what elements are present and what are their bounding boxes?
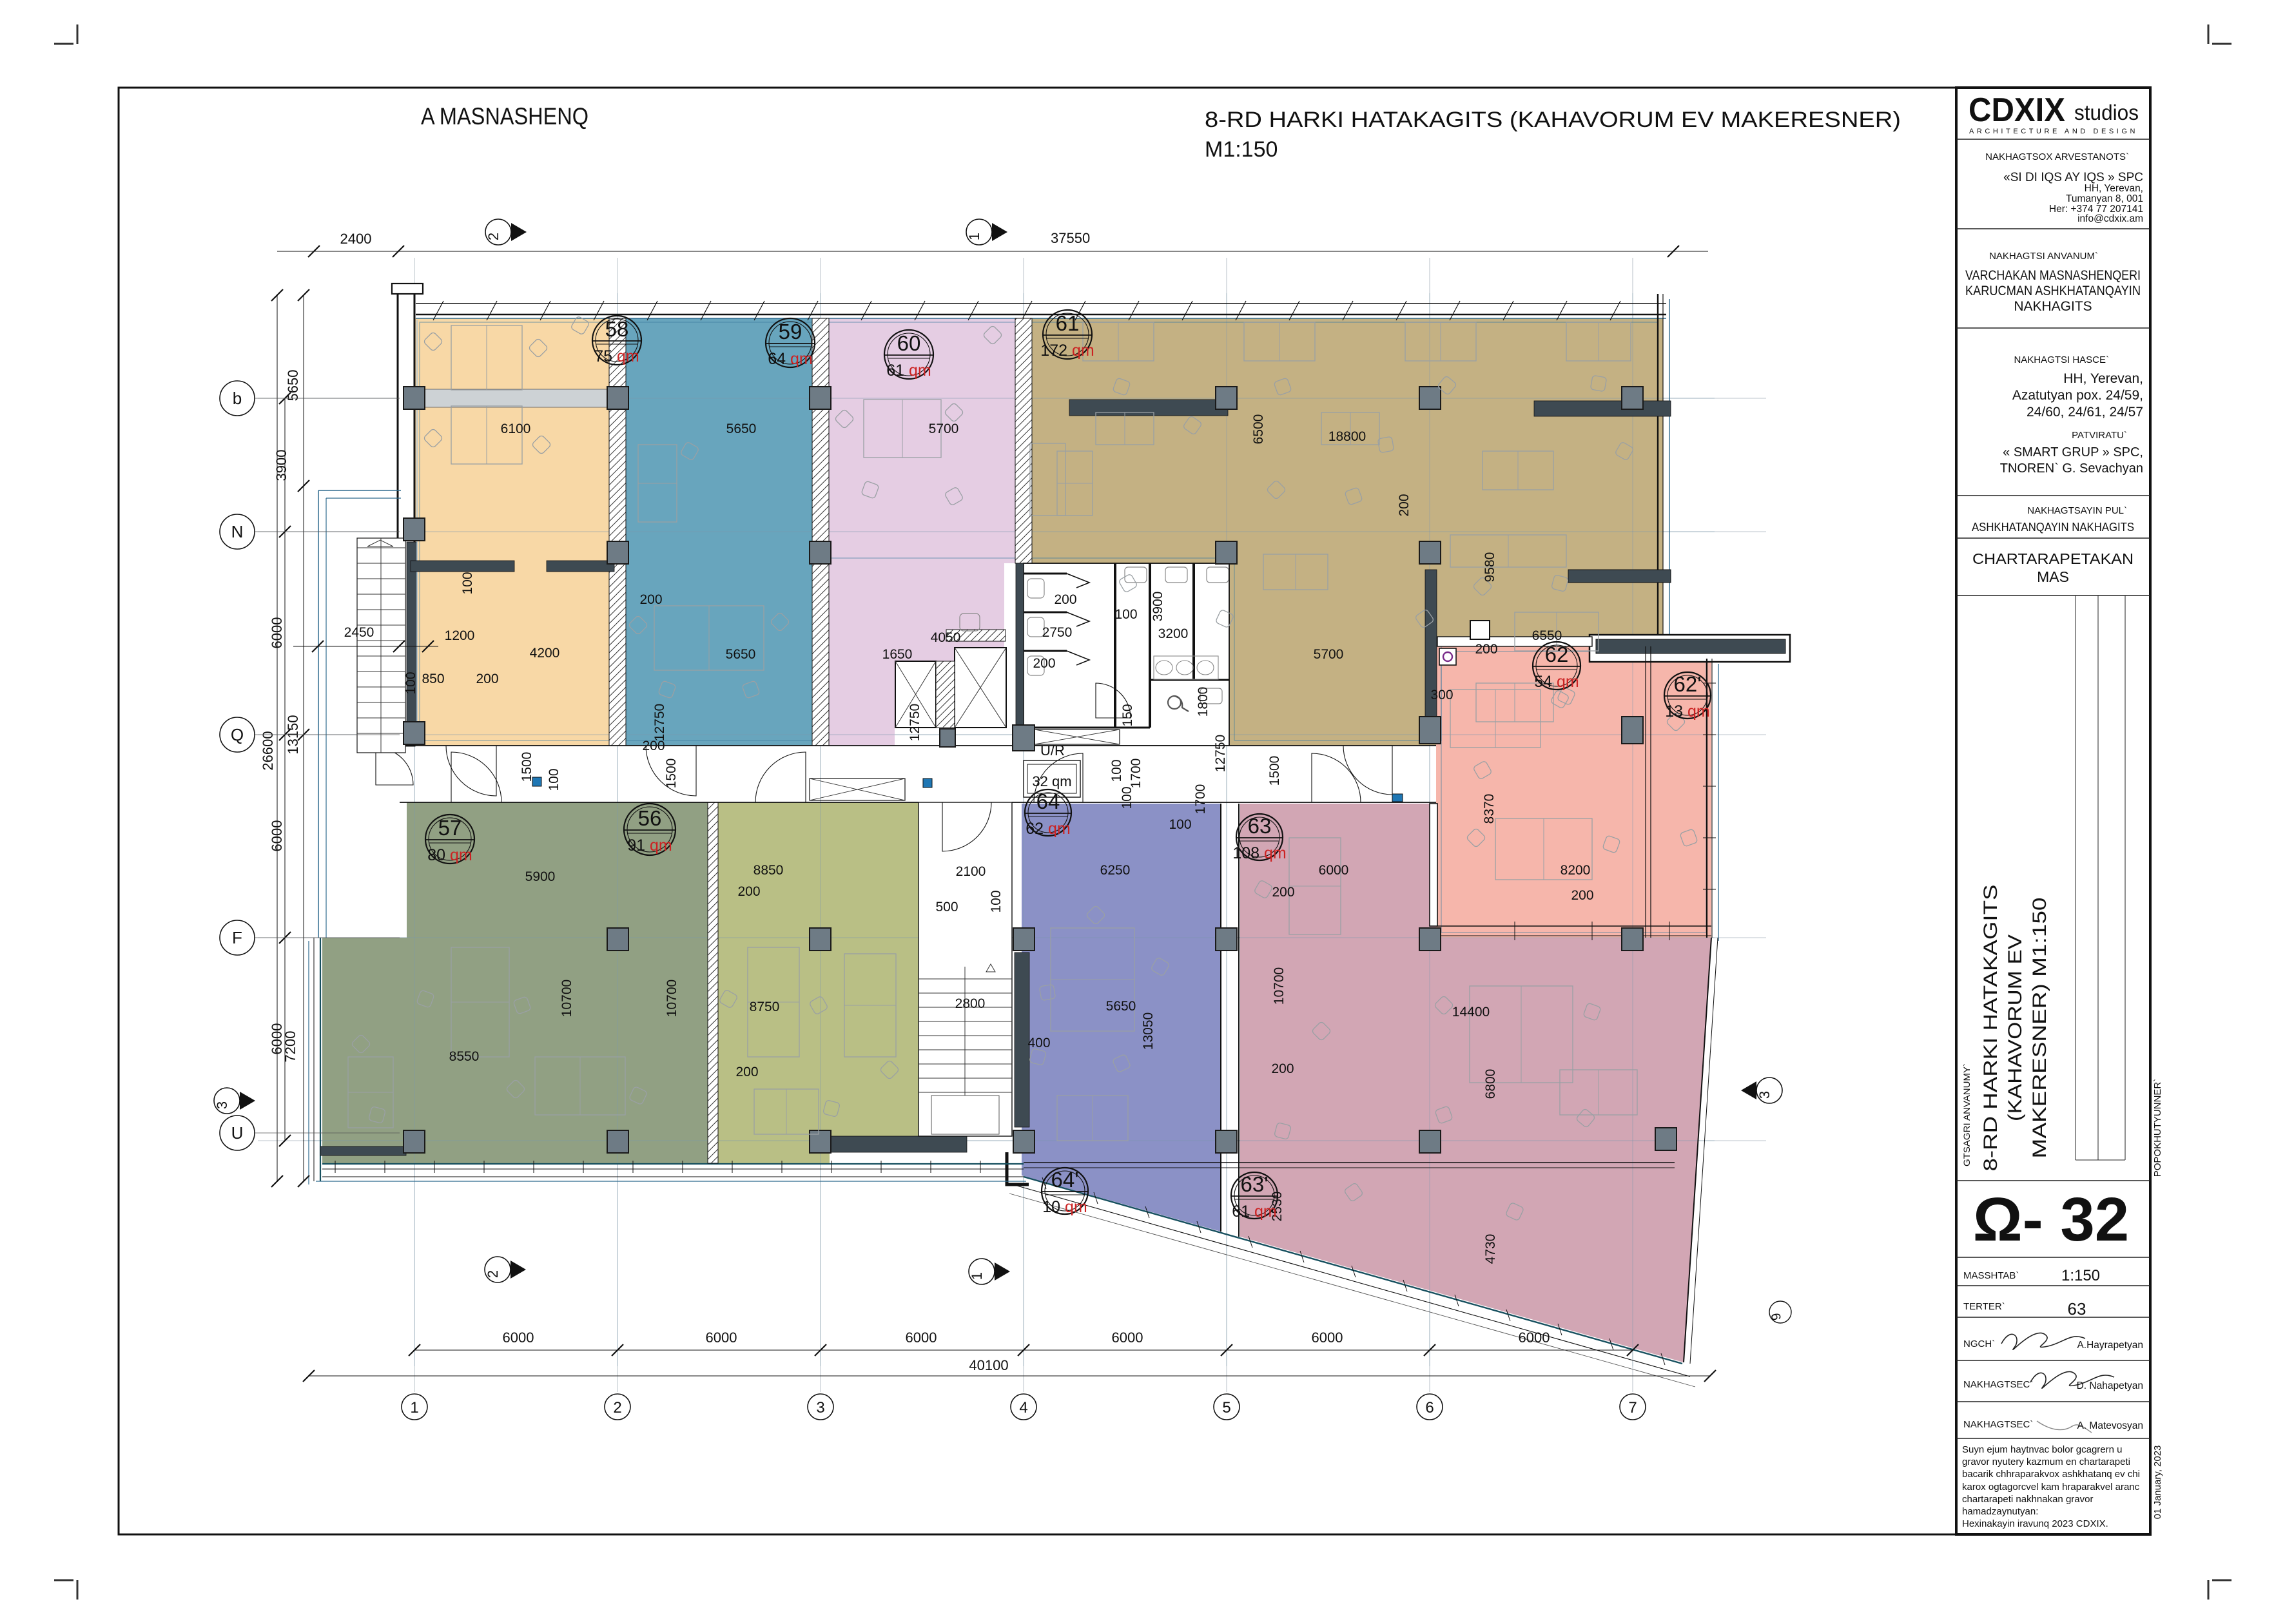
svg-text:8370: 8370: [1482, 794, 1497, 824]
svg-text:24/60, 24/61, 24/57: 24/60, 24/61, 24/57: [2027, 405, 2143, 420]
svg-text:Suyn ejum haytnvac bolor gcagr: Suyn ejum haytnvac bolor gcagrern u: [1962, 1444, 2122, 1455]
svg-text:MASSHTAB`: MASSHTAB`: [1963, 1270, 2019, 1281]
svg-text:5650: 5650: [1106, 999, 1136, 1014]
svg-text:100: 100: [404, 672, 418, 694]
svg-text:6000: 6000: [1319, 863, 1349, 878]
svg-text:6000: 6000: [906, 1329, 937, 1346]
svg-text:2450: 2450: [344, 625, 374, 640]
svg-text:HH, Yerevan,: HH, Yerevan,: [2085, 183, 2143, 194]
svg-text:1500: 1500: [520, 752, 534, 782]
svg-text:TERTER`: TERTER`: [1963, 1301, 2005, 1312]
svg-text:5650: 5650: [726, 421, 757, 436]
svg-text:GTSAGRI ANVANUMY`: GTSAGRI ANVANUMY`: [1961, 1063, 1972, 1166]
svg-text:100: 100: [1169, 817, 1191, 832]
svg-text:gravor nyutery kazmum en chart: gravor nyutery kazmum en chartarapeti: [1962, 1456, 2130, 1467]
svg-text:M1:150: M1:150: [1205, 137, 1278, 162]
svg-text:12750: 12750: [652, 704, 667, 741]
svg-text:200: 200: [735, 1065, 758, 1079]
svg-text:200: 200: [1271, 1061, 1294, 1076]
svg-text:6250: 6250: [1100, 863, 1131, 878]
svg-text:1: 1: [410, 1399, 418, 1416]
svg-text:NAKHAGTSEC`: NAKHAGTSEC`: [1963, 1419, 2033, 1430]
svg-text:1800: 1800: [1196, 687, 1211, 717]
svg-text:2: 2: [485, 1270, 501, 1278]
svg-text:6800: 6800: [1483, 1069, 1498, 1099]
svg-text:2: 2: [613, 1399, 621, 1416]
svg-text:6550: 6550: [1532, 628, 1562, 643]
svg-text:12750: 12750: [1213, 735, 1228, 772]
svg-text:10700: 10700: [665, 980, 679, 1017]
svg-text:108 qm: 108 qm: [1232, 844, 1286, 862]
svg-text:57: 57: [438, 816, 462, 840]
svg-text:58: 58: [605, 317, 629, 341]
svg-text:«SI DI IQS AY IQS » SPC: «SI DI IQS AY IQS » SPC: [2003, 171, 2143, 184]
svg-text:3900: 3900: [1151, 592, 1165, 622]
svg-text:1:150: 1:150: [2061, 1267, 2100, 1284]
svg-text:Hexinakayin iravunq 2023 CDXIX: Hexinakayin iravunq 2023 CDXIX.: [1962, 1518, 2108, 1529]
svg-text:NAKHAGTSEC`: NAKHAGTSEC`: [1963, 1379, 2033, 1390]
svg-text:« SMART GRUP » SPC,: « SMART GRUP » SPC,: [2003, 445, 2143, 459]
svg-text:HH, Yerevan,: HH, Yerevan,: [2063, 371, 2143, 386]
svg-text:63: 63: [1248, 814, 1272, 838]
svg-text:54 qm: 54 qm: [1534, 673, 1579, 691]
svg-text:100: 100: [1114, 607, 1137, 622]
svg-text:studios: studios: [2074, 101, 2139, 124]
svg-text:6: 6: [1425, 1399, 1434, 1416]
svg-text:60: 60: [897, 331, 921, 355]
svg-text:100: 100: [460, 572, 475, 594]
svg-text:61: 61: [1056, 311, 1080, 335]
svg-text:2400: 2400: [340, 231, 372, 247]
svg-text:500: 500: [935, 900, 958, 914]
svg-text:VARCHAKAN MASNASHENQERI: VARCHAKAN MASNASHENQERI: [1965, 268, 2141, 283]
svg-text:hamadzaynutyan:: hamadzaynutyan:: [1962, 1506, 2038, 1517]
svg-text:4200: 4200: [530, 646, 560, 661]
svg-text:64: 64: [1036, 789, 1060, 813]
svg-text:200: 200: [1571, 888, 1593, 903]
svg-text:D. Nahapetyan: D. Nahapetyan: [2077, 1380, 2143, 1391]
svg-text:2800: 2800: [955, 996, 986, 1011]
svg-text:91 qm: 91 qm: [627, 836, 672, 855]
svg-text:N: N: [231, 522, 244, 541]
svg-text:6000: 6000: [503, 1329, 534, 1346]
svg-text:ASHKHATANQAYIN NAKHAGITS: ASHKHATANQAYIN NAKHAGITS: [1972, 521, 2134, 534]
svg-text:6500: 6500: [1251, 414, 1266, 445]
svg-text:62: 62: [1545, 643, 1569, 666]
svg-text:3: 3: [214, 1101, 230, 1109]
svg-text:Tumanyan 8, 001: Tumanyan 8, 001: [2066, 193, 2143, 204]
svg-text:6000: 6000: [706, 1329, 737, 1346]
svg-text:(KAHAVORUM EV: (KAHAVORUM EV: [2005, 934, 2026, 1121]
svg-text:5: 5: [1222, 1399, 1230, 1416]
svg-text:ARCHITECTURE AND DESIGN: ARCHITECTURE AND DESIGN: [1969, 128, 2138, 135]
svg-text:A. Matevosyan: A. Matevosyan: [2077, 1420, 2143, 1431]
svg-text:10700: 10700: [559, 980, 574, 1017]
svg-text:Q: Q: [231, 725, 244, 744]
svg-text:TNOREN` G. Sevachyan: TNOREN` G. Sevachyan: [2000, 461, 2143, 476]
svg-text:7200: 7200: [282, 1031, 298, 1063]
svg-text:2: 2: [485, 233, 501, 240]
svg-text:14400: 14400: [1452, 1005, 1490, 1020]
svg-text:MAKERESNER) M1:150: MAKERESNER) M1:150: [2029, 898, 2050, 1159]
svg-text:63: 63: [2068, 1299, 2086, 1319]
svg-text:8750: 8750: [750, 1000, 780, 1014]
svg-text:200: 200: [737, 884, 760, 899]
svg-text:850: 850: [422, 672, 444, 686]
svg-text:info@cdxix.am: info@cdxix.am: [2077, 213, 2143, 224]
svg-text:61 qm: 61 qm: [886, 362, 931, 380]
svg-text:F: F: [232, 928, 242, 947]
svg-text:37550: 37550: [1051, 230, 1090, 246]
svg-text:1500: 1500: [664, 759, 679, 789]
svg-text:KARUCMAN ASHKHATANQAYIN: KARUCMAN ASHKHATANQAYIN: [1965, 284, 2141, 298]
svg-text:13050: 13050: [1141, 1012, 1156, 1050]
svg-text:karox ogtagorcvel kam hraparak: karox ogtagorcvel kam hraparakvel aranc: [1962, 1482, 2140, 1493]
svg-text:3: 3: [816, 1399, 824, 1416]
svg-text:5700: 5700: [929, 421, 959, 436]
svg-text:NAKHAGITS: NAKHAGITS: [2014, 299, 2092, 314]
svg-text:2100: 2100: [956, 864, 986, 879]
svg-text:200: 200: [1054, 592, 1076, 607]
svg-text:56: 56: [638, 806, 662, 830]
svg-text:6000: 6000: [1112, 1329, 1143, 1346]
svg-text:U/R: U/R: [1040, 742, 1065, 759]
svg-text:2750: 2750: [1042, 625, 1073, 640]
svg-text:200: 200: [639, 592, 662, 607]
svg-text:61 qm: 61 qm: [1232, 1203, 1277, 1221]
svg-text:5650: 5650: [726, 647, 756, 662]
svg-text:18800: 18800: [1328, 429, 1366, 444]
svg-text:CHARTARAPETAKAN: CHARTARAPETAKAN: [1972, 550, 2134, 567]
svg-text:400: 400: [1027, 1036, 1050, 1050]
svg-text:13 qm: 13 qm: [1665, 702, 1710, 720]
svg-text:1: 1: [966, 233, 982, 240]
svg-text:1200: 1200: [445, 628, 475, 643]
svg-text:4: 4: [1019, 1399, 1027, 1416]
svg-text:200: 200: [1397, 494, 1412, 516]
svg-text:26600: 26600: [260, 731, 276, 770]
svg-text:01 January, 2023: 01 January, 2023: [2152, 1445, 2163, 1520]
svg-text:200: 200: [1272, 885, 1294, 900]
svg-text:9580: 9580: [1483, 552, 1497, 583]
svg-text:200: 200: [1033, 656, 1055, 671]
svg-text:3200: 3200: [1158, 626, 1189, 641]
svg-text:1700: 1700: [1193, 784, 1208, 815]
svg-text:bacarik chhraparakvox ashkhata: bacarik chhraparakvox ashkhatanq ev chi: [1962, 1469, 2140, 1480]
svg-text:75 qm: 75 qm: [594, 347, 639, 365]
svg-text:8850: 8850: [754, 863, 784, 878]
svg-text:CDXIX: CDXIX: [1969, 92, 2065, 129]
svg-text:63': 63': [1240, 1172, 1268, 1196]
svg-text:5700: 5700: [1314, 647, 1344, 662]
svg-text:NGCH`: NGCH`: [1963, 1339, 1995, 1349]
svg-text:100: 100: [1120, 786, 1134, 809]
svg-text:80 qm: 80 qm: [427, 846, 472, 864]
svg-text:1500: 1500: [1267, 756, 1282, 786]
svg-text:1700: 1700: [1129, 759, 1143, 789]
svg-text:62 qm: 62 qm: [1026, 820, 1071, 838]
svg-text:64': 64': [1051, 1168, 1078, 1192]
svg-text:8550: 8550: [449, 1049, 480, 1064]
svg-text:100: 100: [1109, 759, 1124, 782]
svg-text:MAS: MAS: [2037, 568, 2069, 585]
svg-text:PATVIRATU`: PATVIRATU`: [2072, 430, 2127, 441]
svg-text:7: 7: [1628, 1399, 1637, 1416]
svg-text:Azatutyan pox. 24/59,: Azatutyan pox. 24/59,: [2012, 388, 2143, 403]
svg-text:8200: 8200: [1561, 863, 1591, 878]
svg-text:200: 200: [1475, 642, 1497, 657]
svg-text:172 qm: 172 qm: [1040, 342, 1094, 360]
svg-text:64 qm: 64 qm: [768, 350, 813, 368]
svg-text:10 qm: 10 qm: [1042, 1198, 1087, 1216]
svg-text:A MASNASHENQ: A MASNASHENQ: [421, 103, 588, 130]
svg-text:10700: 10700: [1272, 967, 1287, 1005]
svg-text:150: 150: [1120, 704, 1135, 726]
svg-text:100: 100: [989, 890, 1004, 913]
svg-text:U: U: [231, 1123, 244, 1143]
svg-text:1650: 1650: [882, 647, 913, 662]
svg-text:6000: 6000: [269, 820, 285, 852]
svg-text:4050: 4050: [931, 630, 961, 645]
svg-text:NAKHAGTSI ANVANUM`: NAKHAGTSI ANVANUM`: [1989, 251, 2098, 262]
svg-text:62': 62': [1673, 672, 1701, 696]
svg-text:chartarapeti nakhnakan gravor: chartarapeti nakhnakan gravor: [1962, 1494, 2093, 1505]
svg-text:6000: 6000: [1519, 1329, 1550, 1346]
svg-text:6100: 6100: [501, 421, 531, 436]
svg-text:Ω- 32: Ω- 32: [1973, 1185, 2129, 1254]
svg-text:3: 3: [1756, 1091, 1773, 1099]
svg-text:4730: 4730: [1483, 1234, 1498, 1264]
svg-text:100: 100: [547, 768, 561, 791]
svg-text:32 qm: 32 qm: [1032, 773, 1071, 789]
svg-text:300: 300: [1430, 688, 1453, 702]
svg-text:b: b: [233, 389, 242, 408]
svg-text:6000: 6000: [269, 617, 285, 649]
svg-text:5900: 5900: [525, 869, 556, 884]
svg-text:NAKHAGTSI HASCE`: NAKHAGTSI HASCE`: [2014, 354, 2109, 365]
svg-text:8-RD HARKI HATAKAGITS: 8-RD HARKI HATAKAGITS: [1980, 885, 2001, 1172]
svg-text:5650: 5650: [285, 370, 301, 401]
svg-text:NAKHAGTSAYIN PUL`: NAKHAGTSAYIN PUL`: [2027, 505, 2127, 516]
svg-text:59: 59: [779, 320, 802, 343]
svg-text:8-RD HARKI HATAKAGITS (KAHAV: 8-RD HARKI HATAKAGITS (KAHAVORUM EV MAKE…: [1205, 108, 1901, 132]
svg-text:6000: 6000: [1312, 1329, 1343, 1346]
svg-text:NAKHAGTSOX ARVESTANOTS`: NAKHAGTSOX ARVESTANOTS`: [1985, 151, 2129, 162]
svg-text:200: 200: [476, 672, 498, 686]
svg-text:A.Hayrapetyan: A.Hayrapetyan: [2077, 1340, 2143, 1351]
svg-text:40100: 40100: [969, 1357, 1008, 1373]
svg-text:1: 1: [969, 1272, 985, 1280]
svg-text:POPOKHUTYUNNER`: POPOKHUTYUNNER`: [2152, 1079, 2163, 1177]
svg-text:3900: 3900: [273, 450, 289, 481]
svg-text:12750: 12750: [908, 704, 922, 741]
